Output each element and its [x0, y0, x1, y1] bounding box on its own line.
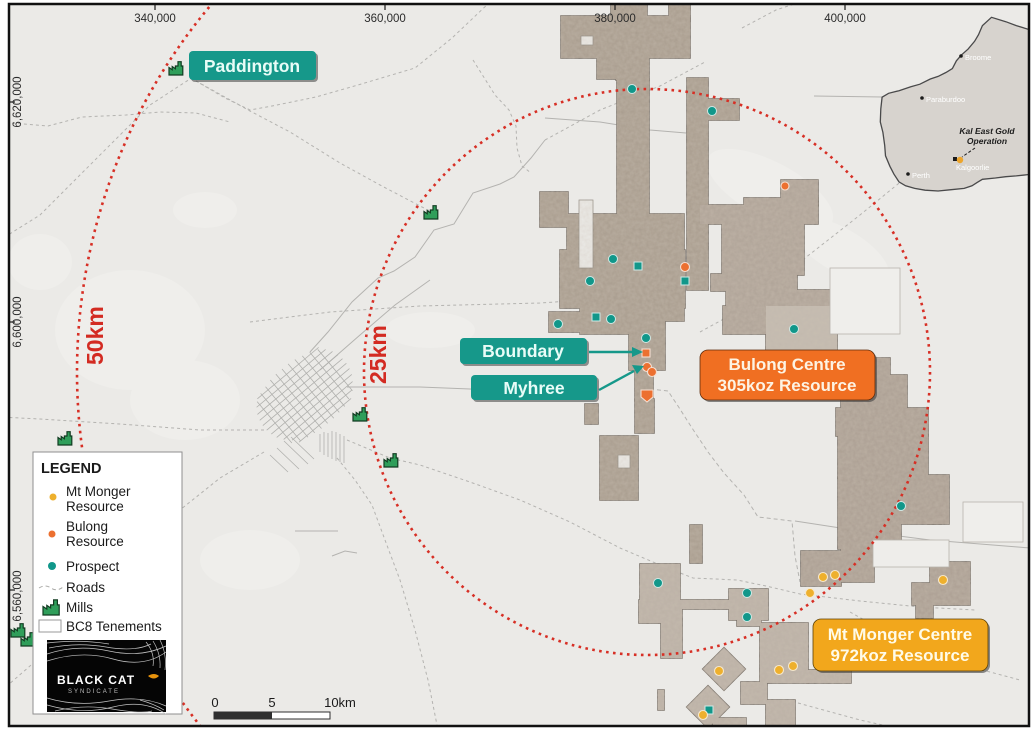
svg-text:340,000: 340,000 [134, 13, 176, 25]
svg-text:Perth: Perth [912, 171, 930, 180]
svg-text:BC8 Tenements: BC8 Tenements [66, 619, 162, 634]
svg-text:Resource: Resource [66, 534, 124, 549]
svg-text:Paraburdoo: Paraburdoo [926, 95, 965, 104]
svg-text:Mt Monger Centre: Mt Monger Centre [828, 625, 973, 644]
svg-text:Kalgoorlie: Kalgoorlie [956, 163, 989, 172]
svg-text:Bulong: Bulong [66, 519, 108, 534]
svg-text:305koz Resource: 305koz Resource [718, 376, 857, 395]
svg-text:Kal East Gold: Kal East Gold [959, 126, 1015, 136]
svg-text:Roads: Roads [66, 580, 105, 595]
svg-text:6,560,000: 6,560,000 [12, 570, 24, 621]
svg-text:10km: 10km [324, 695, 356, 710]
svg-text:LEGEND: LEGEND [41, 461, 101, 477]
svg-text:400,000: 400,000 [824, 13, 866, 25]
svg-text:BLACK CAT: BLACK CAT [57, 673, 135, 687]
svg-text:972koz Resource: 972koz Resource [831, 646, 970, 665]
svg-text:SYNDICATE: SYNDICATE [68, 689, 120, 695]
svg-text:380,000: 380,000 [594, 13, 636, 25]
svg-text:Broome: Broome [965, 53, 991, 62]
svg-text:Mt Monger: Mt Monger [66, 484, 131, 499]
svg-text:25km: 25km [365, 325, 391, 384]
svg-text:Boundary: Boundary [482, 341, 564, 361]
svg-text:0: 0 [211, 695, 218, 710]
svg-text:50km: 50km [82, 306, 108, 365]
svg-text:Bulong Centre: Bulong Centre [728, 355, 845, 374]
svg-text:Operation: Operation [967, 136, 1007, 146]
svg-text:Mills: Mills [66, 600, 93, 615]
svg-text:360,000: 360,000 [364, 13, 406, 25]
svg-text:5: 5 [268, 695, 275, 710]
svg-text:Myhree: Myhree [503, 378, 565, 398]
svg-text:Paddington: Paddington [204, 56, 300, 76]
svg-text:Resource: Resource [66, 499, 124, 514]
svg-text:Prospect: Prospect [66, 559, 120, 574]
